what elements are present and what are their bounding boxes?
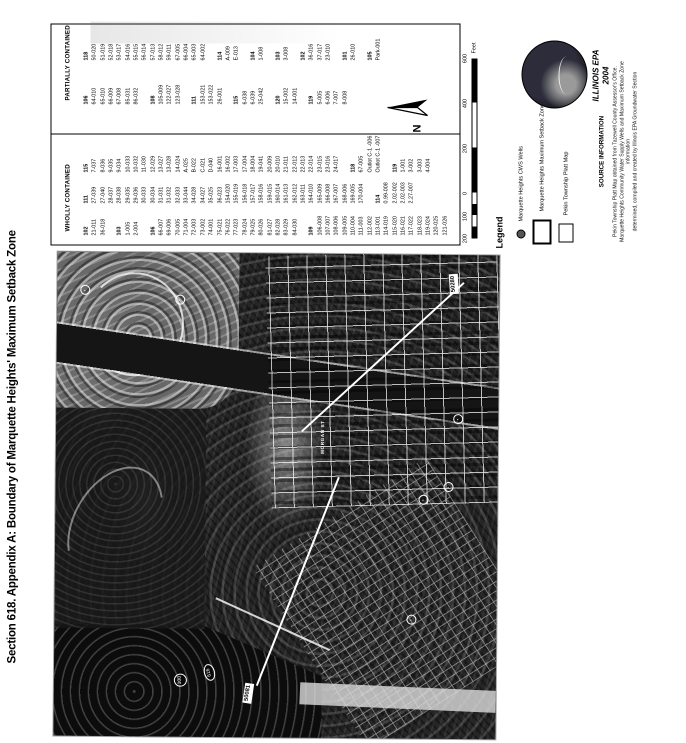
parcel-cell: 14-001 [291,84,299,104]
table-gap [224,84,232,104]
parcel-cell: 157-017 [249,182,257,203]
north-arrow-icon [387,96,439,118]
district-header: 119 [391,135,399,172]
table-gap [107,215,115,235]
table-gap [266,84,274,104]
district-header: 119 [307,84,315,104]
table-gap [299,215,307,235]
well-symbol-icon [516,229,525,238]
parcel-cell: 1-005 [124,215,132,235]
parcel-cell: 4-004 [424,135,432,172]
parcel-cell: 114-019 [382,215,390,235]
parcel-cell: 36-018 [99,215,107,235]
parcel-cell: 9-035 [107,135,115,172]
parcel-cell: B-022 [190,135,198,172]
district-header: 102 [82,215,90,235]
parcel-cell: 119-024 [424,215,432,235]
district-header: 118 [349,135,357,172]
parcel-cell: 163-011 [299,182,307,203]
parcel-cell: 0.99-008 [382,182,390,203]
parcel-cell: 122-027 [165,84,173,104]
parcel-cell: 31-031 [157,182,165,203]
district-header: 115 [82,135,90,172]
table-gap [357,38,365,60]
district-header: 106 [82,84,90,104]
parcel-cell: 33-044 [182,182,190,203]
parcel-cell: 76-022 [224,215,232,235]
legend-heading: Legend [494,216,504,248]
source-line: determined, compiled and created by Illi… [632,52,639,250]
north-arrow: N [387,92,443,132]
parcel-cell: 105-009 [157,84,165,104]
scale-bar: 200 100 0 200 400 600 Feet [462,28,486,238]
parcel-cell: 65-010 [99,84,107,104]
parcel-cell: 153-021 [199,84,207,104]
setback-zone-symbol-icon [532,219,551,244]
district-header: 111 [82,182,90,203]
parcel-cell: 67-005 [357,135,365,172]
parcel-cell: 79-025 [249,215,257,235]
district-header: 103 [115,215,123,235]
parcel-cell: 71-004 [182,215,190,235]
parcel-cell: 73-002 [199,215,207,235]
parcel-cell: 14-024 [174,135,182,172]
parcel-cell: 156-018 [241,182,249,203]
parcel-cell: 8-036 [99,135,107,172]
parcel-cell: 30-034 [149,182,157,203]
parcel-cell: 64-010 [90,84,98,104]
parcel-cell: 18-004 [249,135,257,172]
parcel-cell: A-025 [182,135,190,172]
scale-label: 200 [462,143,468,152]
parcel-cell: 29-036 [132,182,140,203]
parcel-cell: 35-025 [207,182,215,203]
parcel-cell: 155-019 [232,182,240,203]
parcel-cell: 10-033 [124,135,132,172]
table-gap [140,215,148,235]
parcel-cell: 30-033 [140,182,148,203]
parcel-cell: 19-041 [257,135,265,172]
parcel-cell: 26-010 [349,38,357,60]
wholly-contained-header: WHOLLY CONTAINED [64,164,71,231]
table-gap [299,84,307,104]
table-gap [366,182,374,203]
parcel-cell: 72-003 [190,215,198,235]
parcel-cell: 167-007 [332,182,340,203]
parcel-cell: 34-027 [199,182,207,203]
scale-label: 0 [462,191,468,194]
aerial-photo-map: 50081 50280 616 100 MORGAN ST [53,251,499,739]
district-header: 115 [232,84,240,104]
parcel-cell: 75-021 [216,215,224,235]
table-column: 11127-03927-04028-03728-03829-03529-0363… [82,182,416,203]
parcel-cell: 120-025 [432,215,440,235]
parcel-cell: 8-008 [341,84,349,104]
parcel-cell: 110-004 [349,215,357,235]
parcel-cell: 162-012 [291,182,299,203]
district-header: 118 [82,38,90,60]
table-gap [341,135,349,172]
page-title: Section 618. Appendix A: Boundary of Mar… [6,230,18,663]
parcel-cell: 2.02-002 [391,182,399,203]
scale-label: 100 [462,211,468,220]
route-marker-100: 100 [173,673,186,686]
landscape-sheet: Section 618. Appendix A: Boundary of Mar… [0,0,686,743]
parcel-cell: 106-008 [316,215,324,235]
parcel-cell: 23-016 [324,135,332,172]
district-header: 105 [366,38,374,60]
parcel-cell: 31-032 [165,182,173,203]
parcel-cell: 16-001 [216,135,224,172]
district-header: 109 [307,215,315,235]
parcel-cell: 160-014 [274,182,282,203]
table-gap [382,135,390,172]
source-line: Pekin Township Platt Map obtained from T… [612,52,619,250]
parcel-cell: D-040 [207,135,215,172]
parcel-cell: 28-037 [107,182,115,203]
parcel-cell: Outlot C-1 -007 [374,135,382,172]
source-heading: SOURCE INFORMATION [598,52,605,250]
parcel-cell: 116-021 [399,215,407,235]
parcel-cell: 16-002 [224,135,232,172]
parcel-cell: 161-013 [282,182,290,203]
legend-item-platt-map: Pekin Township Platt Map [558,151,573,244]
parcel-cell: 69-006 [165,215,173,235]
parcel-cell: 27-040 [99,182,107,203]
scale-unit: Feet [471,42,477,53]
parcel-cell: 70-005 [174,215,182,235]
parcel-cell: 21-011 [90,215,98,235]
parcel-cell: 153-022 [207,84,215,104]
legend-item-label: Marquette Heights Maximum Setback Zone [539,103,545,211]
parcel-cell: 36-023 [216,182,224,203]
platt-map-symbol-icon [558,223,573,242]
parcel-cell: 23-015 [316,135,324,172]
parcel-cell: 7-037 [90,135,98,172]
parcel-cell: 12-029 [149,135,157,172]
parcel-cell: 158-016 [257,182,265,203]
parcel-cell: 82-028 [274,215,282,235]
parcel-cell: 9-034 [115,135,123,172]
parcel-cell: 168-006 [341,182,349,203]
table-column: 10221-01136-018 1031-0052-004 10666-0076… [82,215,449,235]
source-information: SOURCE INFORMATION Pekin Township Platt … [598,52,638,250]
scale-label: 200 [462,233,468,242]
parcel-cell: 170-004 [357,182,365,203]
scale-label: 600 [462,53,468,62]
parcel-cell: 169-005 [349,182,357,203]
well-marker [418,494,428,504]
parcel-cell: 6-038 [241,84,249,104]
parcel-cell: 78-024 [241,215,249,235]
parcel-cell: 5-005 [316,84,324,104]
parcel-cell: 29-035 [124,182,132,203]
legend-item-setback-zone: Marquette Heights Maximum Setback Zone [532,103,551,244]
illinois-epa-seal-icon [521,40,587,108]
well-marker [406,614,416,624]
well-marker [443,481,453,491]
parcel-cell: 67-008 [115,84,123,104]
parcel-cell: 159-015 [266,182,274,203]
parcel-cell: 109-005 [341,215,349,235]
parcel-cell: 6-039 [249,84,257,104]
parcel-cell: 113-001 [374,215,382,235]
parcel-cell: 22-013 [299,135,307,172]
parcel-cell: 20-009 [266,135,274,172]
parcel-cell: 22-014 [307,135,315,172]
parcel-cell: 17-003 [232,135,240,172]
legend-item-label: Pekin Township Platt Map [563,151,569,215]
district-header: 111 [190,84,198,104]
partially-contained-header: PARTIALLY CONTAINED [64,25,71,100]
parcel-cell: 7-007 [332,84,340,104]
parcel-cell: 74-001 [207,215,215,235]
parcel-cell: 165-009 [316,182,324,203]
parcel-cell: 6-006 [324,84,332,104]
parcel-cell: 107-007 [324,215,332,235]
parcel-cell: 85-031 [124,84,132,104]
parcel-cell: 86-032 [132,84,140,104]
parcel-cell: 24-017 [332,135,340,172]
well-marker [80,284,90,294]
scan-streak [90,21,340,43]
table-gap [140,84,148,104]
well-marker [175,294,185,304]
parcel-cell: 81-027 [266,215,274,235]
legend-item-wells: Marquette Heights CWS Wells [516,146,525,244]
parcel-cell: 83-029 [282,215,290,235]
parcel-cell: 115-020 [391,215,399,235]
parcel-cell: 166-008 [324,182,332,203]
district-header: 114 [374,182,382,203]
parcel-cell: 66-007 [157,215,165,235]
table-divider [51,133,459,134]
parcel-cell: 20-010 [274,135,282,172]
parcel-cell: C-021 [199,135,207,172]
parcel-cell: 2-004 [132,215,140,235]
source-line: Marquette Heights Community Water Supply… [619,52,632,250]
parcel-cell: Park-001 [374,38,382,60]
parcel-cell: 80-026 [257,215,265,235]
parcel-cell: 11-030 [140,135,148,172]
parcel-cell: 66-009 [107,84,115,104]
parcel-cell: 2.02-003 [399,182,407,203]
parcel-cell: 84-030 [291,215,299,235]
river-area [53,623,322,737]
parcel-cell: 27-039 [90,182,98,203]
district-header: 106 [149,215,157,235]
parcel-cell: 2.27-007 [407,182,415,203]
parcel-cell: 10-032 [132,135,140,172]
parcel-cell: 25-042 [257,84,265,104]
parcel-cell: Outlot C-1 -006 [366,135,374,172]
parcel-cell: 28-038 [115,182,123,203]
north-label: N [411,124,423,132]
parcel-cell: 117-022 [407,215,415,235]
parcel-cell: 15-002 [282,84,290,104]
parcel-cell: 111-003 [357,215,365,235]
street-label-morgan-st: MORGAN ST [319,420,324,454]
parcel-cell: 17-004 [241,135,249,172]
parcel-table: WHOLLY CONTAINED PARTIALLY CONTAINED 102… [50,23,460,245]
parcel-cell: 21-011 [282,135,290,172]
parcel-cell: 34-028 [190,182,198,203]
well-label-50280: 50280 [448,273,458,294]
table-column: 1157-0378-0369-0359-03410-03310-03211-03… [82,135,432,172]
parcel-cell: 3-003 [416,135,424,172]
parcel-cell: 154-020 [224,182,232,203]
parcel-cell: 22-012 [291,135,299,172]
legend-item-label: Marquette Heights CWS Wells [518,146,524,221]
parcel-cell: 13-027 [157,135,165,172]
parcel-cell: 13-028 [165,135,173,172]
parcel-cell: 26-001 [216,84,224,104]
well-marker [453,414,463,424]
parcel-cell: 118-023 [416,215,424,235]
scale-label: 400 [462,98,468,107]
scanned-page: Section 618. Appendix A: Boundary of Mar… [0,0,686,743]
parcel-cell: 164-010 [307,182,315,203]
table-gap [182,84,190,104]
parcel-cell: 108-006 [332,215,340,235]
plat-grid [265,251,499,508]
district-header: 120 [274,84,282,104]
parcel-cell: 112-002 [366,215,374,235]
parcel-cell: 77-023 [232,215,240,235]
table-column: 10664-01065-01066-00967-00885-03186-032 … [82,84,349,104]
district-header: 101 [341,38,349,60]
parcel-cell: 1-001 [399,135,407,172]
district-header: 108 [149,84,157,104]
scale-bar-graphic [471,58,477,238]
parcel-cell: 3-002 [407,135,415,172]
parcel-cell: 32-033 [174,182,182,203]
parcel-cell: 123-028 [174,84,182,104]
parcel-cell: 121-026 [441,215,449,235]
